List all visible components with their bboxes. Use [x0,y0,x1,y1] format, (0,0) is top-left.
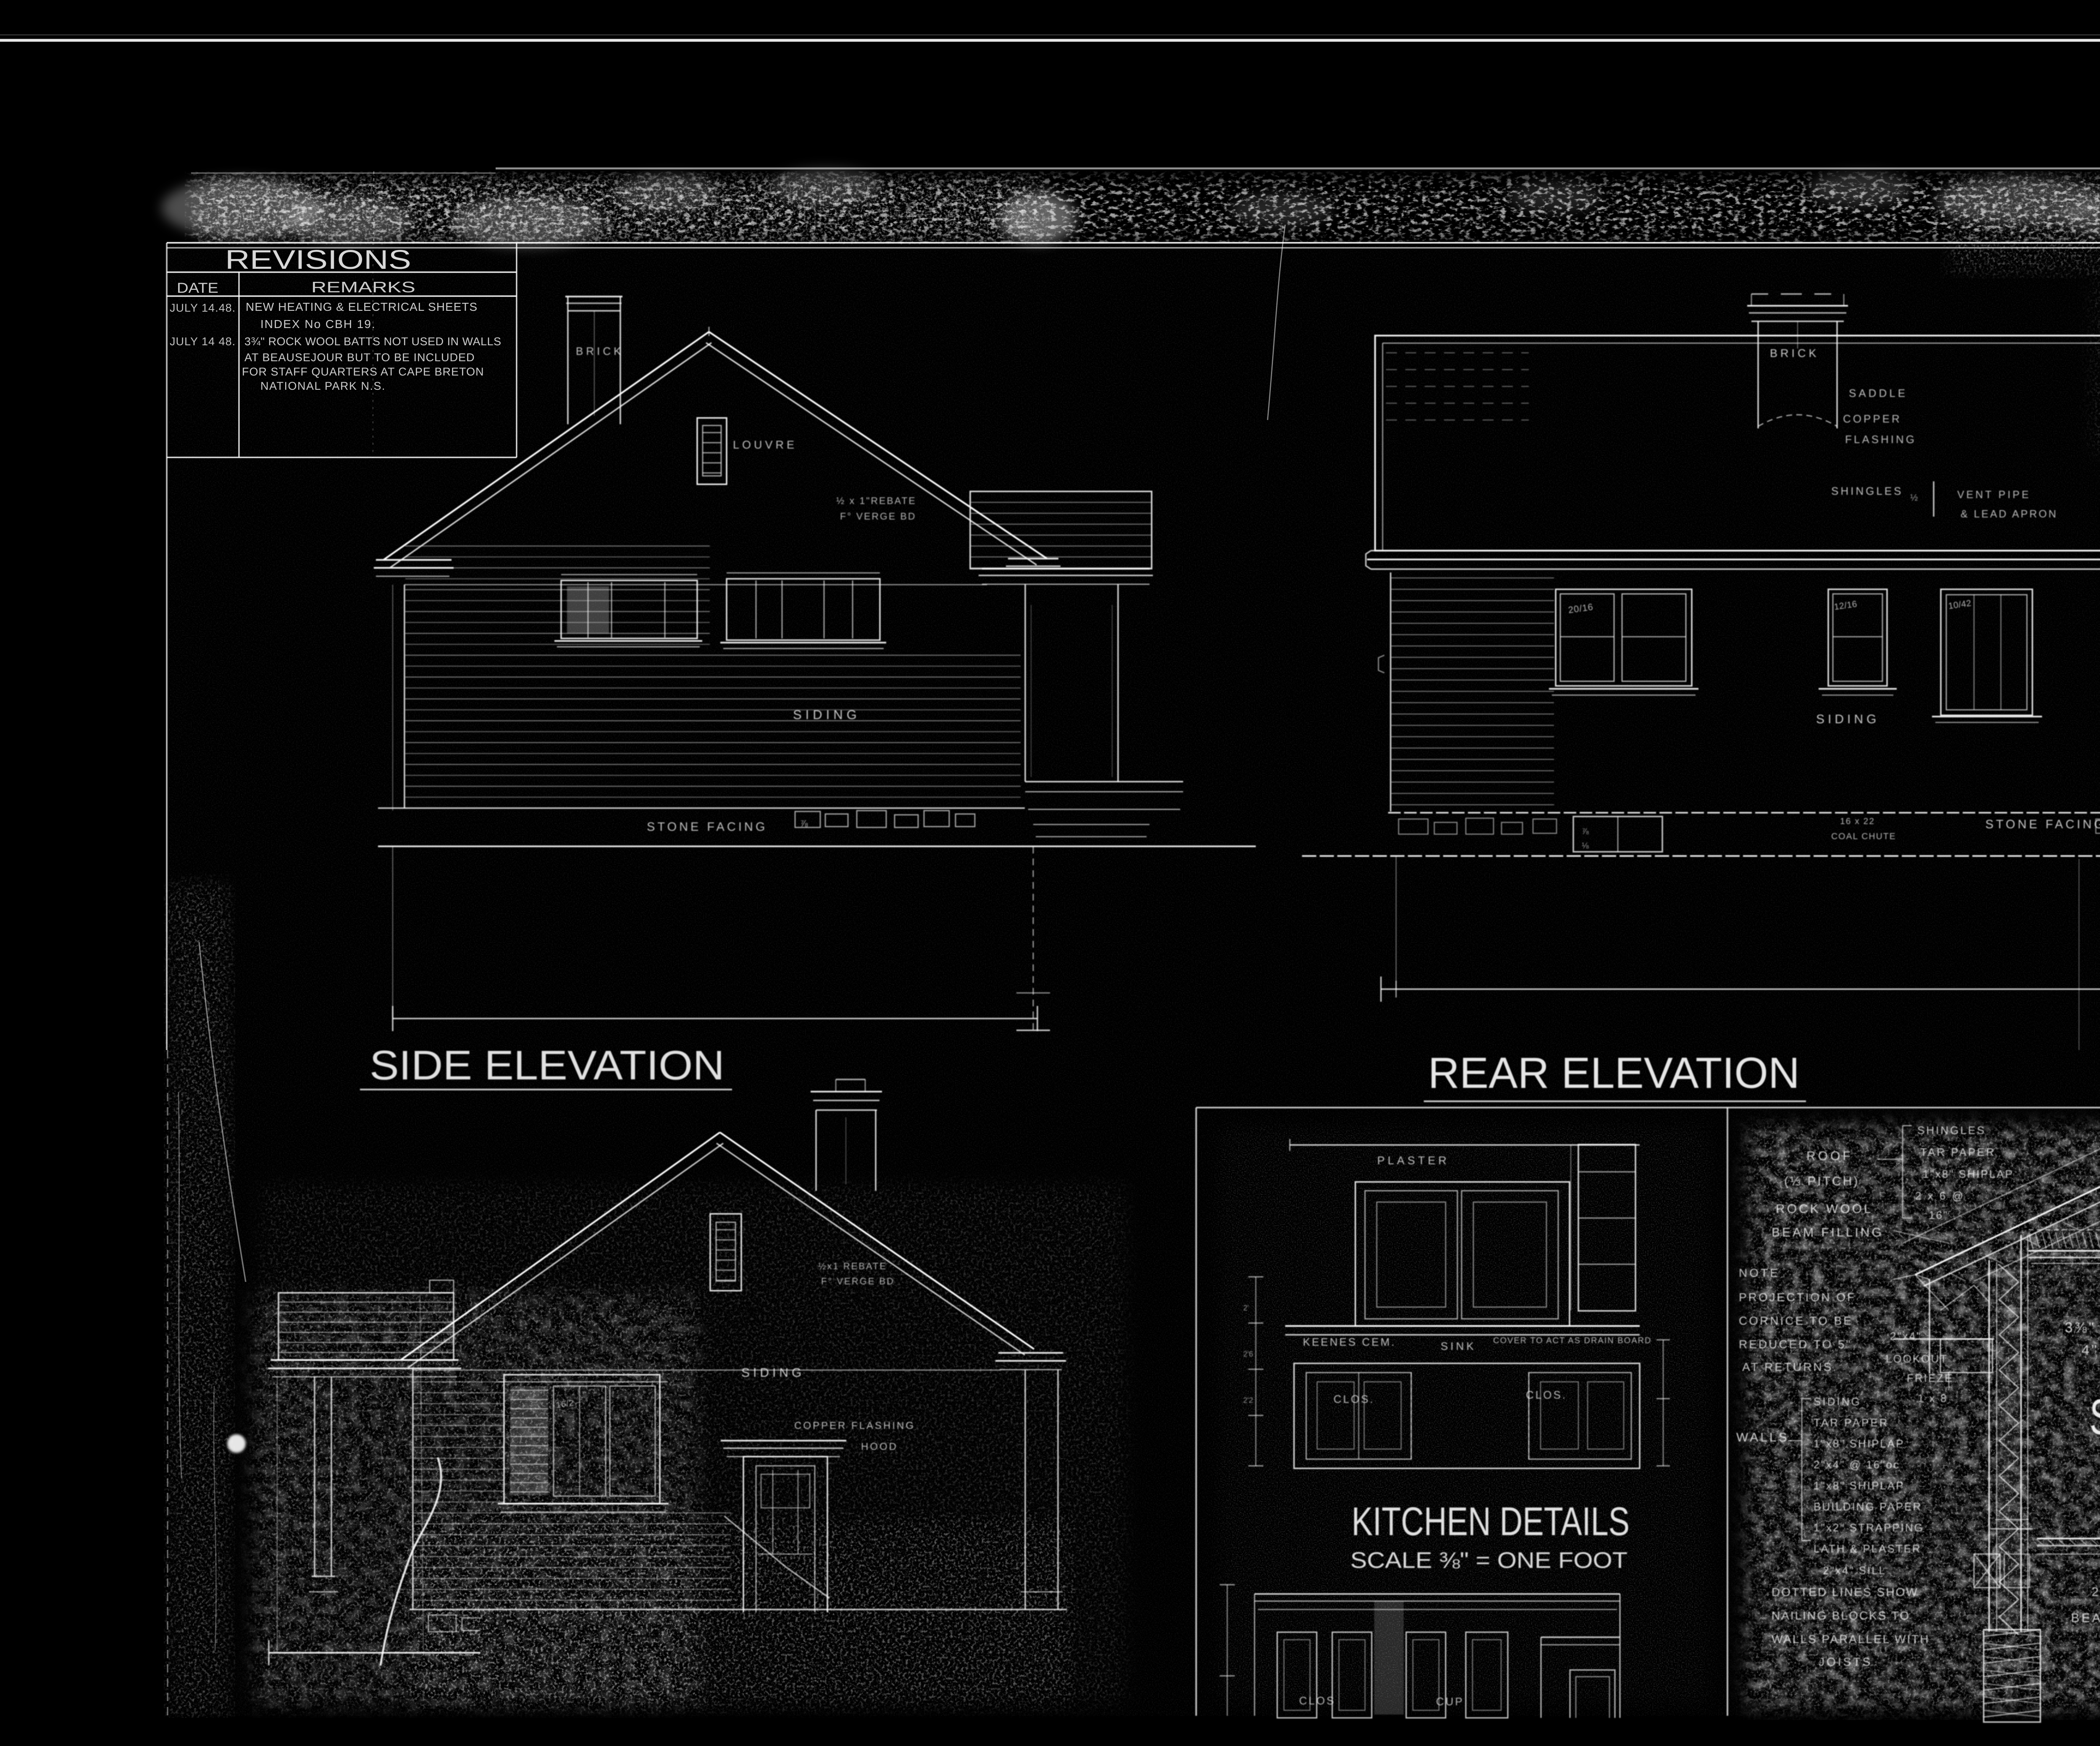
svg-text:BEAM FILLING: BEAM FILLING [1772,1226,1884,1239]
svg-text:CORNICE TO BE: CORNICE TO BE [1739,1314,1853,1327]
svg-text:SHINGLES: SHINGLES [1831,485,1903,497]
svg-text:SIDE ELEVATION: SIDE ELEVATION [370,1042,724,1088]
svg-text:½: ½ [1910,492,1918,503]
svg-text:VENT PIPE: VENT PIPE [1957,489,2031,501]
svg-text:JULY 14 48.: JULY 14 48. [170,335,236,348]
svg-text:AT BEAUSEJOUR BUT TO BE INCLUD: AT BEAUSEJOUR BUT TO BE INCLUDED [244,351,475,364]
svg-text:⅞: ⅞ [800,818,808,829]
svg-text:REMARKS: REMARKS [311,278,415,296]
svg-text:STONE FACING.: STONE FACING. [1985,818,2100,831]
svg-text:REVISIONS: REVISIONS [225,244,411,275]
svg-text:HOOD: HOOD [861,1441,898,1452]
svg-text:TAR PAPER: TAR PAPER [1920,1146,1996,1158]
svg-text:2"x8" @ 16" oc: 2"x8" @ 16" oc [2092,1585,2100,1599]
svg-text:4" BATTS: 4" BATTS [2082,1342,2100,1358]
svg-text:LOUVRE: LOUVRE [733,438,797,451]
svg-text:2': 2' [1243,1304,1249,1312]
svg-text:KEENES CEM.: KEENES CEM. [1303,1336,1396,1348]
svg-text:DATE: DATE [177,280,218,296]
svg-text:LATH & PLASTER: LATH & PLASTER [1814,1542,1921,1555]
svg-text:2"x4" @ 16"oc: 2"x4" @ 16"oc [1814,1458,1900,1471]
svg-text:STONE FACING: STONE FACING [647,820,767,834]
svg-text:REAR ELEVATION: REAR ELEVATION [1428,1049,1800,1097]
svg-text:SIDING: SIDING [793,707,861,722]
svg-text:2'2: 2'2 [1243,1396,1253,1405]
svg-text:16 x 22: 16 x 22 [1840,817,1875,826]
svg-text:KITCHEN DETAILS: KITCHEN DETAILS [1352,1499,1630,1544]
svg-text:NEW HEATING & ELECTRICAL SHEET: NEW HEATING & ELECTRICAL SHEETS [246,300,478,313]
svg-text:COPPER: COPPER [1843,412,1902,425]
svg-text:BRICK: BRICK [1770,347,1819,360]
svg-text:SIDING: SIDING [1816,712,1879,726]
svg-text:FOR STAFF QUARTERS AT CAPE BRE: FOR STAFF QUARTERS AT CAPE BRETON [242,365,484,378]
svg-text:SECTION: SECTION [2089,1389,2100,1445]
svg-text:PROJECTION OF: PROJECTION OF [1739,1291,1856,1304]
svg-text:SINK: SINK [1441,1340,1476,1352]
svg-text:& LEAD APRON: & LEAD APRON [1961,508,2058,520]
svg-text:2 x 6 @: 2 x 6 @ [1915,1189,1965,1202]
svg-text:LOOKOUT: LOOKOUT [1886,1352,1948,1365]
svg-text:REDUCED TO 5": REDUCED TO 5" [1739,1338,1852,1351]
svg-text:2'6: 2'6 [1243,1350,1253,1358]
svg-text:FRIEZE: FRIEZE [1907,1372,1953,1384]
svg-text:1"x8" SHIPLAP: 1"x8" SHIPLAP [1923,1168,2013,1180]
svg-text:1"x2" STRAPPING: 1"x2" STRAPPING [1814,1521,1924,1534]
svg-text:COVER TO ACT AS DRAIN BOARD: COVER TO ACT AS DRAIN BOARD [1493,1336,1651,1345]
svg-text:WALLS PARALLEL WITH: WALLS PARALLEL WITH [1772,1633,1930,1646]
svg-text:CLOS: CLOS [1299,1694,1336,1707]
svg-text:PLASTER: PLASTER [1377,1154,1449,1167]
svg-text:½ x 1"REBATE: ½ x 1"REBATE [836,495,916,506]
svg-text:NAILING BLOCKS TO: NAILING BLOCKS TO [1772,1609,1910,1622]
svg-text:F° VERGE BD: F° VERGE BD [821,1276,895,1287]
svg-text:AT RETURNS.: AT RETURNS. [1742,1360,1838,1373]
svg-text:F° VERGE BD: F° VERGE BD [840,511,916,522]
svg-text:SIDING: SIDING [741,1366,805,1380]
svg-text:TAR PAPER: TAR PAPER [1814,1416,1889,1429]
svg-text:FLASHING: FLASHING [1845,433,1916,446]
svg-text:16": 16" [1929,1209,1948,1221]
svg-text:1 x 8: 1 x 8 [1918,1392,1948,1405]
svg-text:JOISTS: JOISTS [1819,1655,1872,1668]
svg-text:1"x8" SHIPLAP: 1"x8" SHIPLAP [1814,1437,1904,1450]
svg-text:SADDLE: SADDLE [1849,387,1908,399]
svg-text:NATIONAL PARK N.S.: NATIONAL PARK N.S. [260,380,386,392]
svg-text:½x1 REBATE: ½x1 REBATE [818,1261,887,1271]
svg-text:3¾" ROCK WOOL BATTS NOT USED I: 3¾" ROCK WOOL BATTS NOT USED IN WALLS [244,335,501,348]
svg-text:BUILDING PAPER: BUILDING PAPER [1814,1500,1922,1513]
svg-text:ROOF: ROOF [1806,1149,1853,1163]
svg-text:CLOS.: CLOS. [1526,1389,1567,1401]
svg-text:COPPER FLASHING: COPPER FLASHING [794,1420,915,1431]
svg-text:2"x4" SILL: 2"x4" SILL [1823,1564,1886,1577]
svg-text:2"x4": 2"x4" [1890,1330,1921,1342]
svg-text:SIDING: SIDING [1814,1395,1861,1408]
svg-text:BRICK: BRICK [576,345,624,357]
svg-text:CLOS.: CLOS. [1333,1393,1375,1405]
svg-text:JULY 14.48.: JULY 14.48. [170,302,236,314]
svg-text:1"x8" SHIPLAP: 1"x8" SHIPLAP [1814,1479,1904,1492]
svg-text:INDEX No CBH 19.: INDEX No CBH 19. [260,318,376,331]
svg-text:NOTE: NOTE [1739,1266,1780,1279]
svg-text:BEAM FILL.: BEAM FILL. [2071,1611,2100,1625]
svg-text:DOTTED LINES SHOW: DOTTED LINES SHOW [1772,1586,1919,1599]
svg-text:⅛: ⅛ [1582,841,1589,851]
svg-text:COAL CHUTE: COAL CHUTE [1831,832,1896,841]
svg-text:SHINGLES: SHINGLES [1917,1124,1986,1137]
svg-text:(⅓ PITCH): (⅓ PITCH) [1784,1174,1859,1188]
svg-text:WALLS.: WALLS. [1736,1431,1795,1444]
svg-text:STONE FACING: STONE FACING [861,1621,979,1634]
svg-text:3⅜" ROCKWOOL: 3⅜" ROCKWOOL [2065,1320,2100,1336]
svg-text:ROCK WOOL: ROCK WOOL [1776,1202,1873,1216]
svg-text:SCALE ⅜" = ONE FOOT: SCALE ⅜" = ONE FOOT [1350,1548,1627,1573]
svg-text:⅞: ⅞ [1582,827,1589,836]
svg-text:CUP: CUP [1436,1695,1464,1708]
